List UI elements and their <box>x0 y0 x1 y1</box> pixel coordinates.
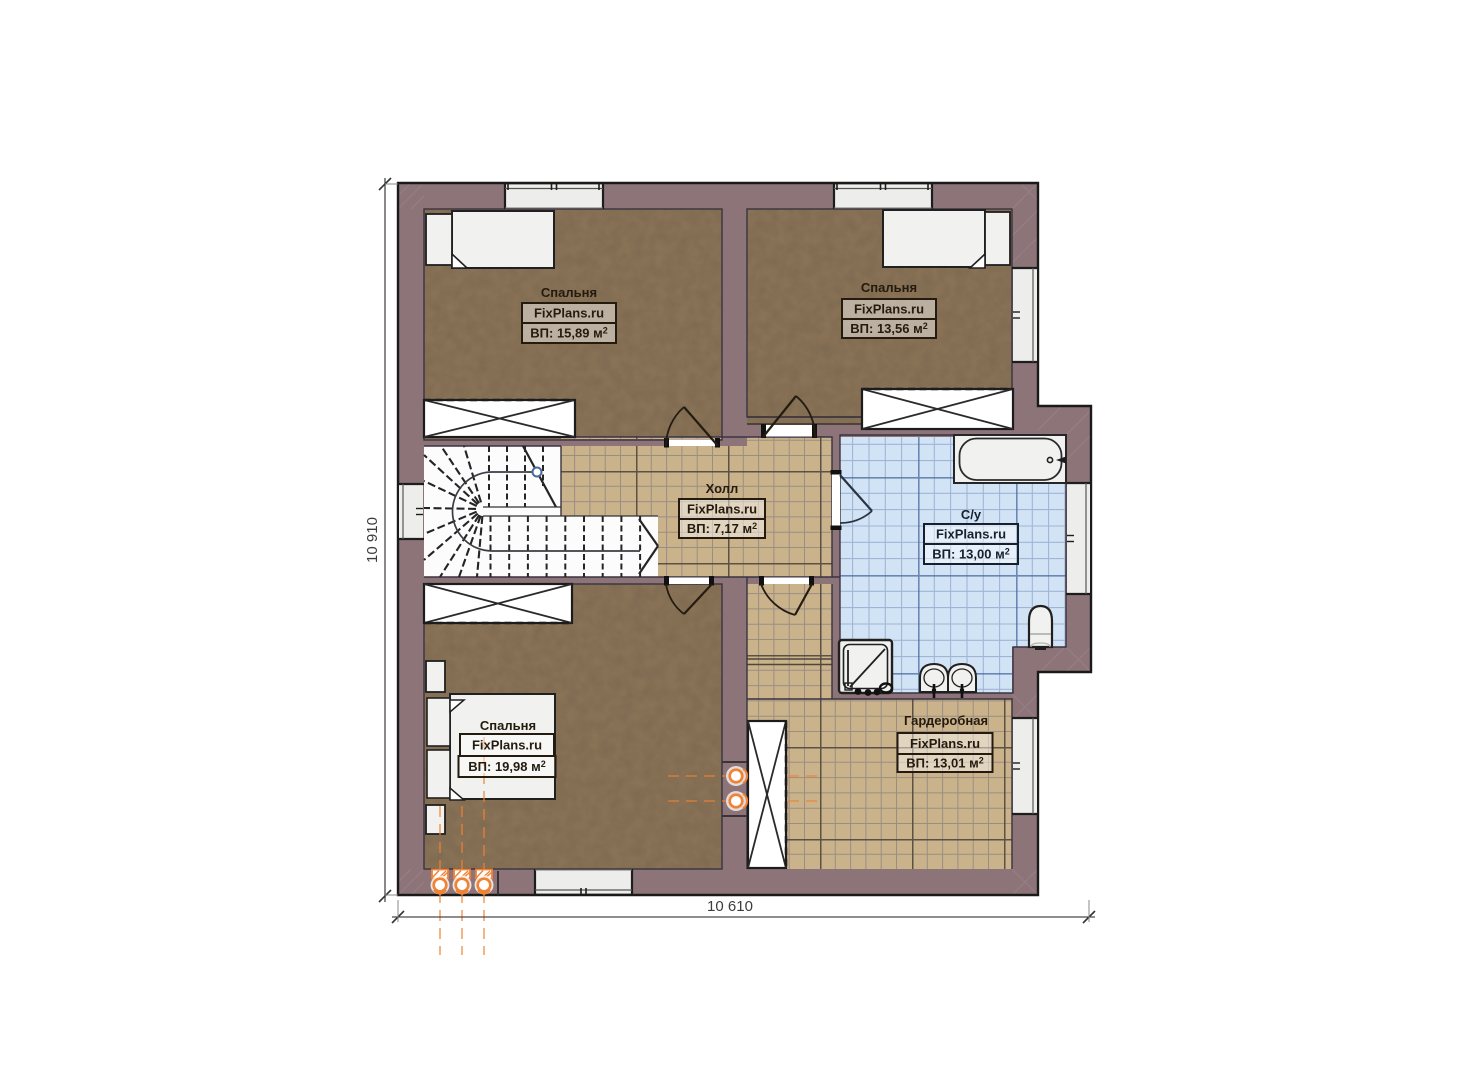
svg-text:FixPlans.ru: FixPlans.ru <box>854 302 924 317</box>
svg-text:Спальня: Спальня <box>541 285 597 300</box>
svg-text:FixPlans.ru: FixPlans.ru <box>472 738 542 753</box>
svg-text:ВП: 15,89 м2: ВП: 15,89 м2 <box>530 326 607 341</box>
svg-text:ВП: 19,98 м2: ВП: 19,98 м2 <box>468 759 545 774</box>
svg-text:Спальня: Спальня <box>480 718 536 733</box>
svg-text:ВП: 13,01 м2: ВП: 13,01 м2 <box>906 756 983 771</box>
svg-text:С/у: С/у <box>961 507 982 522</box>
svg-text:Холл: Холл <box>706 481 739 496</box>
svg-text:FixPlans.ru: FixPlans.ru <box>910 736 980 751</box>
svg-text:FixPlans.ru: FixPlans.ru <box>534 306 604 321</box>
svg-text:FixPlans.ru: FixPlans.ru <box>936 527 1006 542</box>
svg-text:Гардеробная: Гардеробная <box>904 713 988 728</box>
svg-text:ВП: 13,00 м2: ВП: 13,00 м2 <box>932 547 1009 562</box>
svg-text:ВП: 13,56 м2: ВП: 13,56 м2 <box>850 321 927 336</box>
svg-text:ВП: 7,17 м2: ВП: 7,17 м2 <box>687 521 757 536</box>
svg-text:10 910: 10 910 <box>364 517 381 563</box>
svg-text:10 610: 10 610 <box>707 898 753 915</box>
svg-text:Спальня: Спальня <box>861 280 917 295</box>
svg-text:FixPlans.ru: FixPlans.ru <box>687 502 757 517</box>
